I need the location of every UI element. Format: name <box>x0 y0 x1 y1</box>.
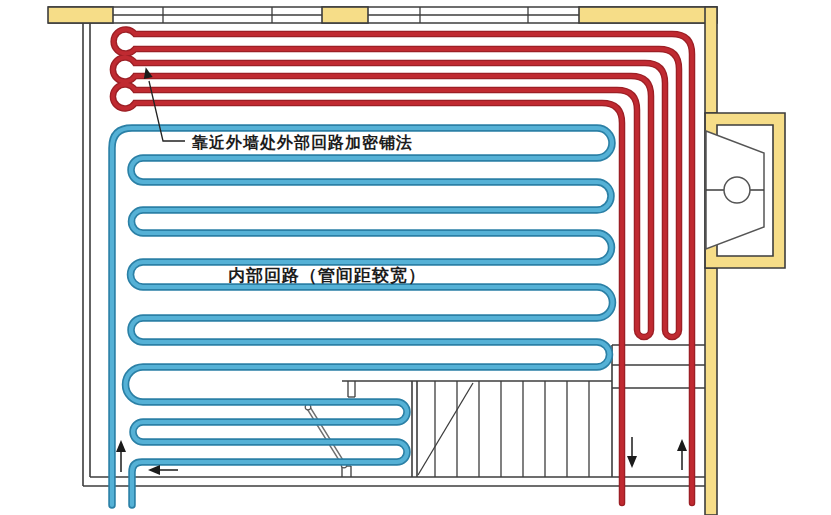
bottom-wall <box>83 477 705 486</box>
outer-loop-label: 靠近外墙处外部回路加密铺法 <box>191 133 413 152</box>
stair-treads <box>435 381 589 477</box>
inner-circuit-pipe-blue <box>112 128 613 505</box>
wall-pier <box>579 7 717 23</box>
fixture-knob <box>724 177 750 203</box>
right-wall-upper <box>705 7 717 113</box>
door-jamb-top <box>348 381 355 397</box>
blue-supply-up-arrow <box>116 440 126 472</box>
wall-pier <box>48 7 113 23</box>
right-wall-lower <box>705 268 717 515</box>
red-return-down-arrow <box>627 437 637 468</box>
left-wall <box>83 23 90 486</box>
inner-loop-label: 内部回路（管间距较宽） <box>228 265 426 285</box>
bay-fixture <box>706 131 764 249</box>
floor-heating-plan: 靠近外墙处外部回路加密铺法 内部回路（管间距较宽） <box>0 0 831 515</box>
floor-plan-svg: 靠近外墙处外部回路加密铺法 内部回路（管间距较宽） <box>0 0 831 515</box>
blue-return-left-arrow <box>148 465 178 475</box>
wall-pier <box>322 7 368 23</box>
stair-break-line <box>418 383 473 475</box>
red-supply-up-arrow <box>677 439 687 470</box>
